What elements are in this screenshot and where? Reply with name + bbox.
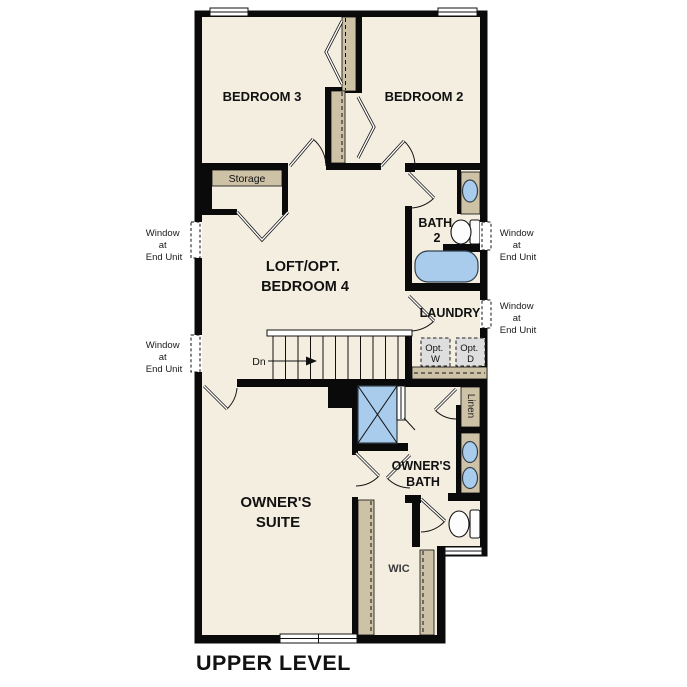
- wall-storage-bottom-stub: [212, 209, 237, 215]
- laundry-label: LAUNDRY: [420, 306, 481, 320]
- window-note-right-upper: Window at End Unit: [500, 228, 537, 263]
- sink-owners-2: [463, 468, 478, 489]
- wall-bedrooms-bottom-b: [326, 163, 381, 170]
- wall-toilet-room-top-right: [448, 493, 487, 501]
- wall-left: [195, 11, 202, 643]
- window-note-left-upper: Window at End Unit: [146, 228, 183, 263]
- wic-label: WIC: [388, 563, 409, 575]
- wall-storage-left-block: [195, 163, 212, 215]
- stair-railing: [267, 330, 412, 336]
- wall-bath2-left-top-stub: [405, 163, 415, 172]
- storage-label: Storage: [229, 173, 266, 185]
- sink-owners-1: [463, 442, 478, 463]
- window-note-left-lower: Window at End Unit: [146, 340, 183, 375]
- floor-plan-page: Dn BEDROOM 3 BEDROOM 2 LOFT/OPT. BEDROOM…: [0, 0, 687, 687]
- wall-vanity-left: [456, 433, 461, 493]
- linen-label: Linen: [465, 394, 476, 418]
- wall-laundry-left: [405, 331, 412, 381]
- toilet-bowl-owners: [449, 511, 469, 537]
- wall-bath2-laundry-divider: [405, 283, 487, 291]
- wall-closet-upper-right: [356, 17, 362, 91]
- wall-bottom-wic: [355, 635, 445, 643]
- window-end-unit-right-bath2: [482, 222, 491, 250]
- wall-storage-right: [282, 163, 288, 215]
- window-end-unit-left-upper: [191, 222, 200, 258]
- stairs-down-label: Dn: [252, 356, 266, 368]
- wall-linen-bottom: [456, 427, 480, 433]
- wall-bedrooms-bottom-c: [415, 163, 487, 170]
- sink-bath2: [463, 180, 478, 202]
- window-end-unit-left-lower: [191, 335, 200, 372]
- wall-bath2-vanity-left: [457, 170, 461, 214]
- wall-owners-right-lower: [352, 497, 358, 643]
- bedroom3-label: BEDROOM 3: [223, 89, 302, 104]
- window-end-unit-right-laundry: [482, 300, 491, 328]
- shelf-wic-right: [420, 550, 434, 635]
- bedroom2-label: BEDROOM 2: [385, 89, 464, 104]
- shelf-bedroom2-closet: [331, 91, 345, 163]
- wall-bath2-left: [405, 206, 412, 283]
- bathtub-bath2: [415, 251, 478, 282]
- wall-laundry-bottom: [405, 379, 487, 387]
- window-note-right-lower: Window at End Unit: [500, 301, 537, 336]
- wall-wic-right: [437, 547, 445, 643]
- wall-below-shower: [352, 443, 408, 451]
- wall-closet-lower-left: [325, 91, 331, 163]
- floor-plan-canvas: Dn BEDROOM 3 BEDROOM 2 LOFT/OPT. BEDROOM…: [0, 0, 687, 687]
- page-title: UPPER LEVEL: [196, 651, 351, 675]
- shelf-wic-left: [358, 500, 374, 635]
- wall-toilet-room-top-stub: [405, 495, 421, 503]
- toilet-tank-owners: [470, 510, 480, 538]
- shelf-bedroom3-closet: [342, 17, 356, 91]
